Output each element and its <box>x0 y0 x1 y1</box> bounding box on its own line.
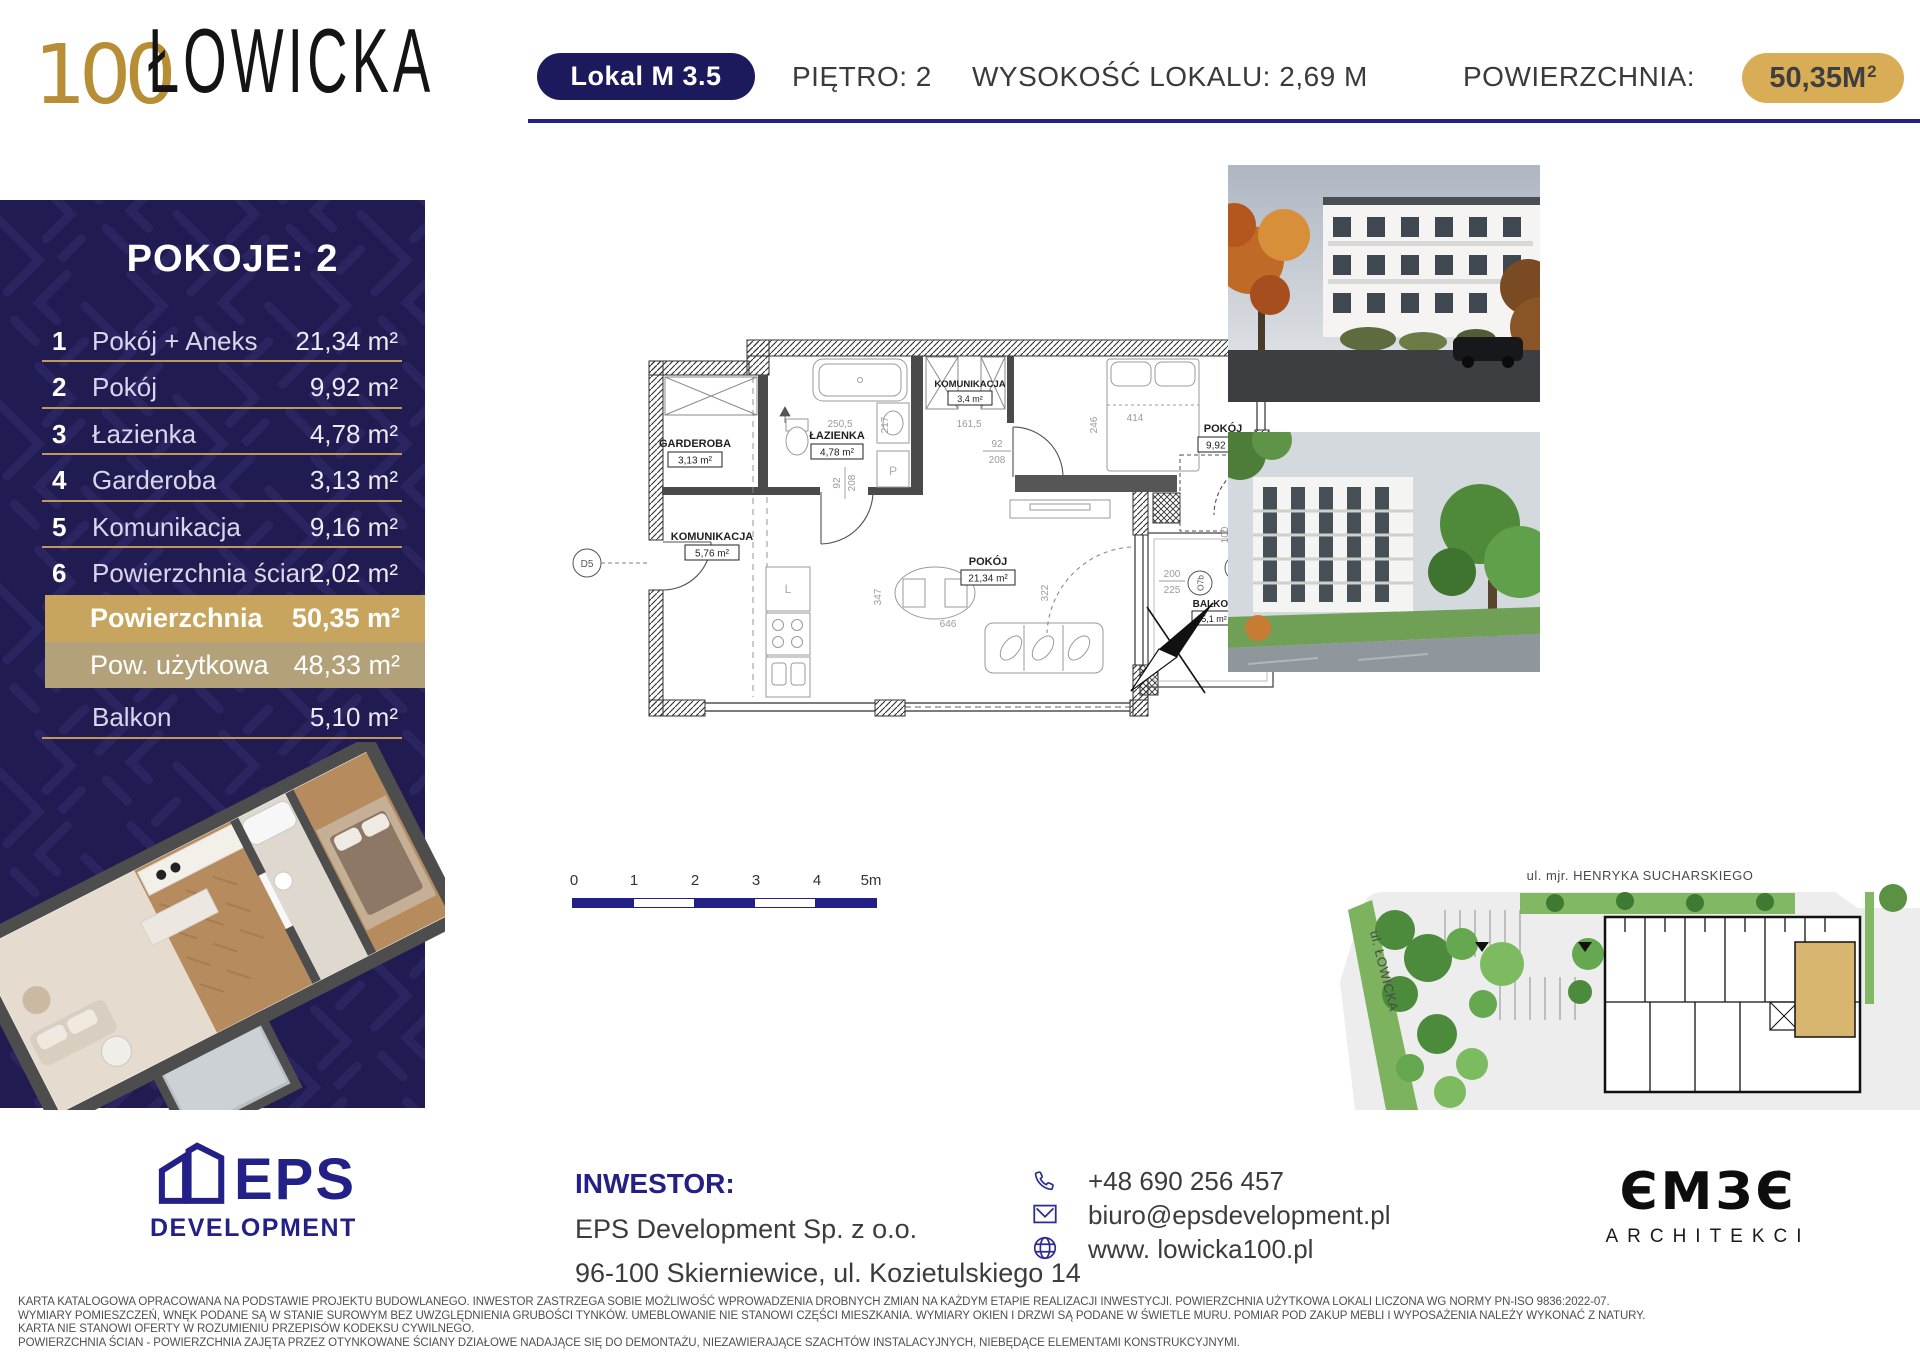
svg-text:217: 217 <box>880 416 891 433</box>
total-area-band: Powierzchnia 50,35 m² <box>45 595 425 642</box>
svg-text:92: 92 <box>832 477 843 489</box>
svg-text:5,76 m²: 5,76 m² <box>695 549 730 560</box>
header-rule <box>528 119 1920 123</box>
eps-subtitle: DEVELOPMENT <box>150 1214 380 1243</box>
area-value: 50,35M <box>1769 62 1866 95</box>
email-address[interactable]: biuro@epsdevelopment.pl <box>1088 1200 1390 1231</box>
svg-text:322: 322 <box>1040 584 1051 601</box>
svg-text:3,4 m²: 3,4 m² <box>957 394 983 404</box>
svg-text:347: 347 <box>873 588 884 605</box>
living-furniture <box>895 500 1110 673</box>
apartment-3d-render <box>0 742 445 1110</box>
legal-line: KARTA KATALOGOWA OPRACOWANA NA PODSTAWIE… <box>18 1296 1913 1310</box>
room-no: 6 <box>52 558 66 589</box>
room-row: 6 Powierzchnia ścian 2,02 m² <box>0 558 425 592</box>
svg-text:250,5: 250,5 <box>827 419 852 430</box>
building-photo-autumn <box>1228 165 1540 402</box>
phone-icon <box>1031 1166 1059 1194</box>
room-area: 2,02 m² <box>310 558 398 589</box>
scale-tick: 2 <box>691 872 699 889</box>
area-exponent: 2 <box>1867 62 1876 82</box>
scale-bar: 0 1 2 3 4 5m <box>572 872 878 916</box>
svg-text:O7b: O7b <box>1196 575 1206 591</box>
room-name: Łazienka <box>92 419 196 450</box>
room-row: 1 Pokój + Aneks 21,34 m² <box>0 326 425 360</box>
north-arrow-icon <box>1125 597 1220 697</box>
room-row: 3 Łazienka 4,78 m² <box>0 419 425 453</box>
total-label: Balkon <box>92 702 172 733</box>
row-separator <box>42 453 402 455</box>
room-label: KOMUNIKACJA <box>671 531 754 543</box>
room-name: Pokój <box>92 372 157 403</box>
total-value: 5,10 m² <box>310 702 398 733</box>
street-label-top: ul. mjr. HENRYKA SUCHARSKIEGO <box>1527 868 1754 883</box>
legal-line: WYMIARY POMIESZCZEŃ, WNĘK PODANE SĄ W ST… <box>18 1310 1913 1324</box>
scale-bar-segments <box>572 898 877 908</box>
total-value: 48,33 m² <box>293 650 400 681</box>
total-label: Pow. użytkowa <box>90 650 269 681</box>
height-label: WYSOKOŚĆ LOKALU: 2,69 M <box>972 61 1368 93</box>
summary-panel: POKOJE: 2 1 Pokój + Aneks 21,34 m² 2 Pok… <box>0 200 425 1108</box>
eps-development-logo: EPS DEVELOPMENT <box>150 1132 380 1262</box>
building-photo-street <box>1228 432 1540 672</box>
room-area: 21,34 m² <box>295 326 398 357</box>
room-row: 5 Komunikacja 9,16 m² <box>0 512 425 546</box>
rooms-count-title: POKOJE: 2 <box>40 238 425 281</box>
email-icon <box>1031 1200 1059 1228</box>
room-name: Pokój + Aneks <box>92 326 258 357</box>
legal-disclaimer: KARTA KATALOGOWA OPRACOWANA NA PODSTAWIE… <box>18 1296 1913 1350</box>
svg-text:646: 646 <box>940 619 957 630</box>
svg-text:D5: D5 <box>581 559 594 570</box>
svg-text:414: 414 <box>1127 413 1144 424</box>
room-area: 3,13 m² <box>310 465 398 496</box>
svg-text:P: P <box>889 464 897 478</box>
room-no: 2 <box>52 372 66 403</box>
room-area: 4,78 m² <box>310 419 398 450</box>
legal-line: POWIERZCHNIA ŚCIAN - POWIERZCHNIA ZAJĘTA… <box>18 1337 1913 1351</box>
unit-badge: Lokal M 3.5 <box>537 53 755 100</box>
svg-text:21,34 m²: 21,34 m² <box>968 574 1008 585</box>
room-name: Komunikacja <box>92 512 241 543</box>
total-value: 50,35 m² <box>292 603 400 634</box>
logo-name: ŁOWICKA <box>148 8 434 113</box>
embe-subtitle: ARCHITEKCI <box>1598 1226 1818 1248</box>
scale-tick: 4 <box>813 872 821 889</box>
scale-tick: 5m <box>861 872 882 889</box>
room-no: 3 <box>52 419 66 450</box>
room-row: 2 Pokój 9,92 m² <box>0 372 425 406</box>
svg-text:92: 92 <box>991 439 1003 450</box>
investor-address: 96-100 Skierniewice, ul. Kozietulskiego … <box>575 1258 1081 1289</box>
room-area: 9,16 m² <box>310 512 398 543</box>
room-label: POKÓJ <box>969 555 1008 568</box>
room-name: Garderoba <box>92 465 216 496</box>
svg-text:L: L <box>785 582 792 596</box>
svg-text:4,78 m²: 4,78 m² <box>820 448 855 459</box>
svg-text:208: 208 <box>847 474 858 491</box>
floor-label: PIĘTRO: 2 <box>792 61 932 93</box>
room-row: 4 Garderoba 3,13 m² <box>0 465 425 499</box>
row-separator <box>42 546 402 548</box>
room-no: 5 <box>52 512 66 543</box>
scale-tick: 3 <box>752 872 760 889</box>
room-label: GARDEROBA <box>659 438 731 450</box>
room-label: KOMUNIKACJA <box>934 379 1005 390</box>
svg-text:161,5: 161,5 <box>956 419 981 430</box>
globe-icon <box>1031 1234 1059 1262</box>
scale-tick: 0 <box>570 872 578 889</box>
embe-logotype: ЄMЗЄ <box>1598 1162 1818 1222</box>
room-label: ŁAZIENKA <box>809 430 865 442</box>
svg-text:208: 208 <box>989 455 1006 466</box>
website-url[interactable]: www. lowicka100.pl <box>1088 1234 1313 1265</box>
room-area: 9,92 m² <box>310 372 398 403</box>
area-value-pill: 50,35M2 <box>1742 53 1904 103</box>
phone-number[interactable]: +48 690 256 457 <box>1088 1166 1284 1197</box>
svg-text:3,13 m²: 3,13 m² <box>678 456 713 467</box>
balcony-row: Balkon 5,10 m² <box>0 702 425 736</box>
investor-label: INWESTOR: <box>575 1168 735 1200</box>
row-separator <box>42 407 402 409</box>
bed <box>1107 359 1199 471</box>
room-name: Powierzchnia ścian <box>92 558 315 589</box>
svg-text:246: 246 <box>1089 416 1100 433</box>
scale-tick: 1 <box>630 872 638 889</box>
area-label: POWIERZCHNIA: <box>1463 61 1695 93</box>
total-label: Powierzchnia <box>90 603 263 634</box>
legal-line: KARTA NIE STANOWI OFERTY W ROZUMIENIU PR… <box>18 1323 1913 1337</box>
room-no: 1 <box>52 326 66 357</box>
investor-name: EPS Development Sp. z o.o. <box>575 1214 917 1245</box>
svg-text:200: 200 <box>1164 569 1181 580</box>
row-separator <box>42 360 402 362</box>
eps-building-icon <box>150 1132 234 1206</box>
usable-area-band: Pow. użytkowa 48,33 m² <box>45 642 425 688</box>
row-separator <box>42 500 402 502</box>
svg-text:225: 225 <box>1164 585 1181 596</box>
site-plan: ul. mjr. HENRYKA SUCHARSKIEGO ul. ŁOWICK… <box>1340 852 1920 1110</box>
embe-architekci-logo: ЄMЗЄ ARCHITEKCI <box>1598 1162 1818 1248</box>
row-separator <box>42 737 402 739</box>
room-no: 4 <box>52 465 66 496</box>
eps-name: EPS <box>234 1154 356 1206</box>
